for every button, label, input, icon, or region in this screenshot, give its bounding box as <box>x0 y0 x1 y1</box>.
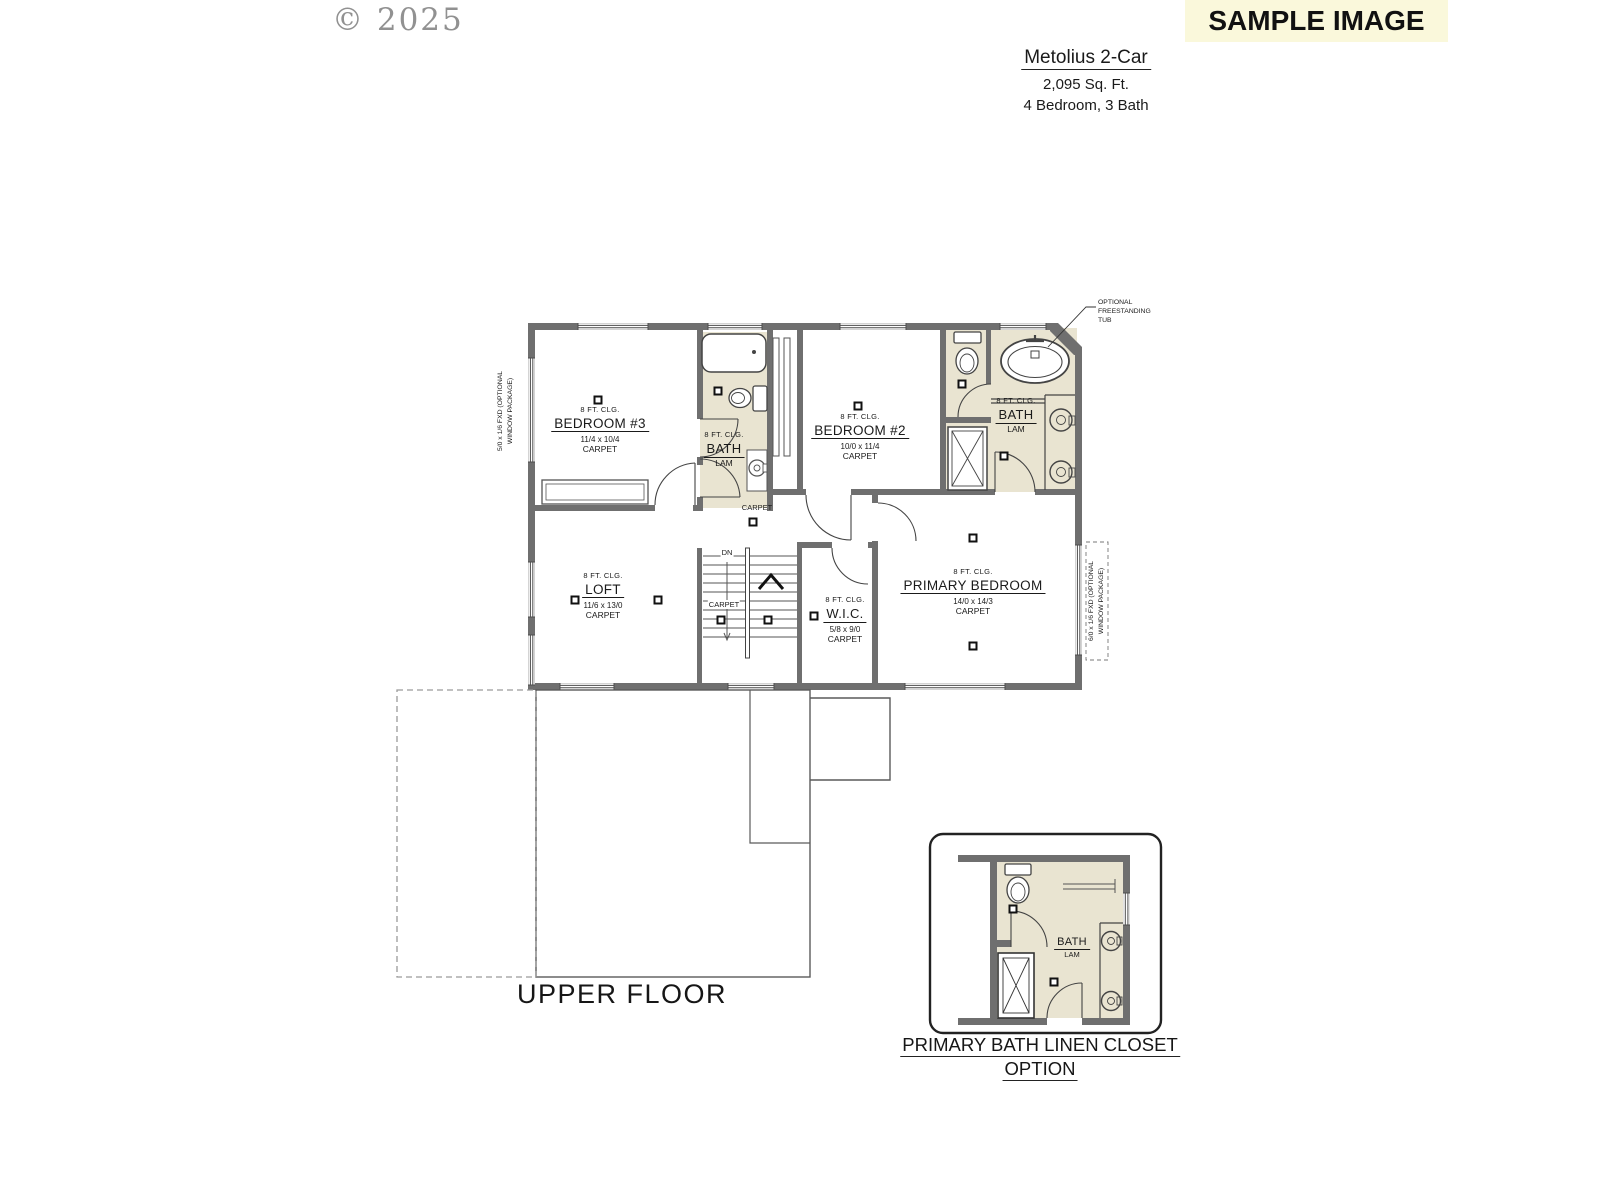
linen-closet-icon <box>998 953 1034 1018</box>
room-label-bedroom-3: 8 FT. CLG. BEDROOM #3 11/4 x 10/4 CARPET <box>551 406 649 455</box>
bathtub-icon <box>702 334 766 372</box>
copyright-watermark: © 2025 <box>332 2 464 38</box>
floor-name: UPPER FLOOR <box>517 979 727 1010</box>
floor-plan-page: © 2025 SAMPLE IMAGE Metolius 2-Car 2,095… <box>0 0 1600 1200</box>
closet-shelf <box>542 480 648 504</box>
plan-beds-baths: 4 Bedroom, 3 Bath <box>1023 97 1148 114</box>
inset-caption-line2: OPTION <box>1003 1058 1078 1080</box>
room-label-primary-bath: 8 FT. CLG. BATH LAM <box>996 397 1037 435</box>
plan-title: Metolius 2-Car <box>1021 47 1151 69</box>
plan-sqft: 2,095 Sq. Ft. <box>1043 76 1129 93</box>
hall-carpet-label: CARPET <box>742 503 772 512</box>
shower-icon <box>948 427 987 490</box>
inset-detail <box>930 834 1161 1033</box>
inset-bath-label: BATH LAM <box>1054 932 1090 960</box>
sink-icon <box>747 450 767 491</box>
lower-floor-outline <box>397 690 890 977</box>
sample-image-label: SAMPLE IMAGE <box>1208 5 1424 37</box>
linen-shelves <box>773 338 790 456</box>
room-label-wic: 8 FT. CLG. W.I.C. 5/8 x 9/0 CARPET <box>823 596 866 645</box>
floor-plan-drawing <box>0 0 1600 1200</box>
room-label-hall-bath: 8 FT. CLG. BATH LAM <box>704 431 745 469</box>
stairs-carpet-label: CARPET <box>708 600 740 609</box>
up-arrow-icon <box>759 575 783 589</box>
stairs-down-label: DN <box>721 548 734 557</box>
room-label-primary-bedroom: 8 FT. CLG. PRIMARY BEDROOM 14/0 x 14/3 C… <box>900 568 1045 617</box>
optional-window-label-right: 6/0 x 1/6 FXD (OPTIONAL WINDOW PACKAGE) <box>1087 561 1107 641</box>
optional-window-label-left: 5/0 x 1/6 FXD (OPTIONAL WINDOW PACKAGE) <box>496 371 516 451</box>
roof-dashed-outline <box>397 690 536 977</box>
room-label-bedroom-2: 8 FT. CLG. BEDROOM #2 10/0 x 11/4 CARPET <box>811 413 909 462</box>
optional-tub-callout: OPTIONAL FREESTANDING TUB <box>1098 298 1151 326</box>
room-label-loft: 8 FT. CLG. LOFT 11/6 x 13/0 CARPET <box>582 572 624 621</box>
toilet-icon <box>1005 864 1031 903</box>
inset-caption-line1: PRIMARY BATH LINEN CLOSET <box>900 1034 1180 1056</box>
sample-image-banner: SAMPLE IMAGE <box>1185 0 1448 42</box>
